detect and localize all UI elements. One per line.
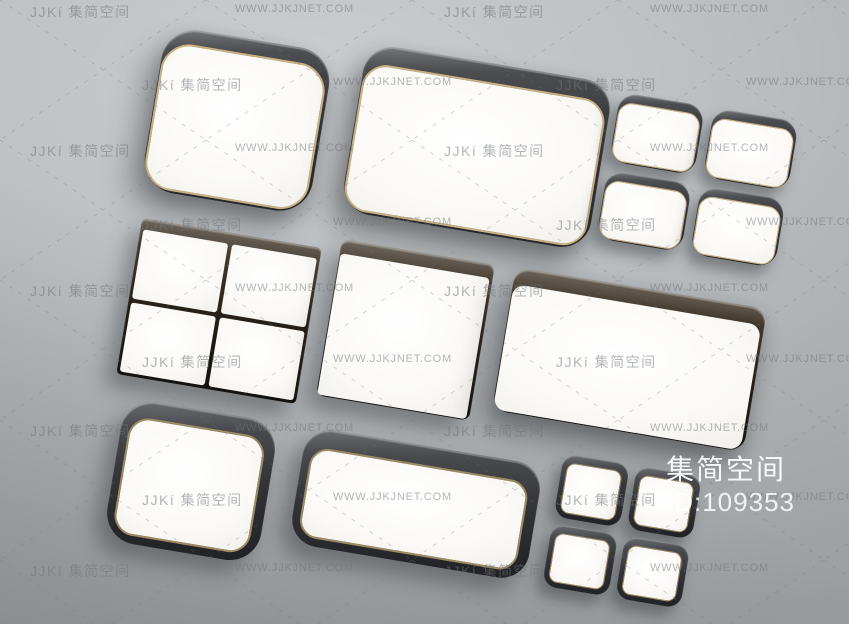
- lamp-face: [597, 179, 689, 251]
- lamp-face: [493, 284, 762, 451]
- brand-watermark: JJKí 集简空间: [30, 421, 131, 441]
- lamp-face: [704, 117, 796, 189]
- brand-watermark: JJKí 集简空间: [30, 141, 131, 161]
- ceiling-lamp-cluster-2x2-black-frame: [542, 453, 702, 608]
- cluster-lamp-cell: [609, 92, 705, 175]
- lamp-face: [691, 194, 783, 266]
- site-watermark: WWW.JJKJNET.COM: [746, 76, 849, 88]
- brand-watermark: JJKí 集简空间: [30, 281, 131, 301]
- brand-watermark: JJKí 集简空间: [444, 421, 545, 441]
- product-render-canvas: JJKí 集简空间WWW.JJKJNET.COMJJKí 集简空间WWW.JJK…: [0, 0, 849, 624]
- brand-watermark: JJKí 集简空间: [30, 2, 131, 22]
- lamp-face: [317, 253, 490, 419]
- ceiling-lamp-square-flat: [316, 239, 495, 420]
- cluster-lamp-cell: [626, 465, 702, 539]
- panel-cell-face: [221, 244, 317, 327]
- cluster-lamp-cell: [554, 453, 630, 527]
- site-watermark: WWW.JJKJNET.COM: [235, 562, 354, 574]
- lamp-face: [620, 544, 683, 603]
- site-watermark: WWW.JJKJNET.COM: [746, 353, 849, 365]
- site-watermark: WWW.JJKJNET.COM: [746, 491, 849, 503]
- ceiling-lamp-rect-black-frame: [288, 426, 544, 582]
- ceiling-lamp-square-gold-rim: [140, 25, 335, 216]
- panel-cell-face: [120, 302, 216, 385]
- lamp-face: [341, 61, 608, 249]
- cluster-lamp-cell: [690, 185, 786, 268]
- lamp-face: [559, 462, 622, 521]
- brand-watermark: JJKí 集简空间: [444, 2, 545, 22]
- cluster-lamp-cell: [614, 535, 690, 609]
- ceiling-lamp-square-black-frame: [102, 397, 280, 565]
- lamp-face: [610, 101, 702, 173]
- lamp-face: [111, 415, 267, 555]
- lamp-face: [632, 474, 695, 533]
- ceiling-lamp-rect-flat: [492, 267, 767, 452]
- cluster-lamp-cell: [596, 170, 692, 253]
- site-watermark: WWW.JJKJNET.COM: [235, 3, 354, 15]
- ceiling-lamp-cluster-2x2-gold-rim: [596, 92, 799, 268]
- site-watermark: WWW.JJKJNET.COM: [650, 3, 769, 15]
- cluster-lamp-cell: [703, 108, 799, 191]
- lamp-face: [297, 446, 530, 572]
- ceiling-panel-cluster-2x2-flat: [116, 218, 322, 404]
- lamp-face: [548, 532, 611, 591]
- cluster-lamp-cell: [542, 523, 618, 597]
- lamp-face: [141, 40, 329, 213]
- panel-cell-face: [132, 229, 228, 312]
- ceiling-lamp-rect-gold-rim: [340, 43, 615, 252]
- brand-watermark: JJKí 集简空间: [30, 561, 131, 581]
- panel-cell-face: [208, 317, 304, 400]
